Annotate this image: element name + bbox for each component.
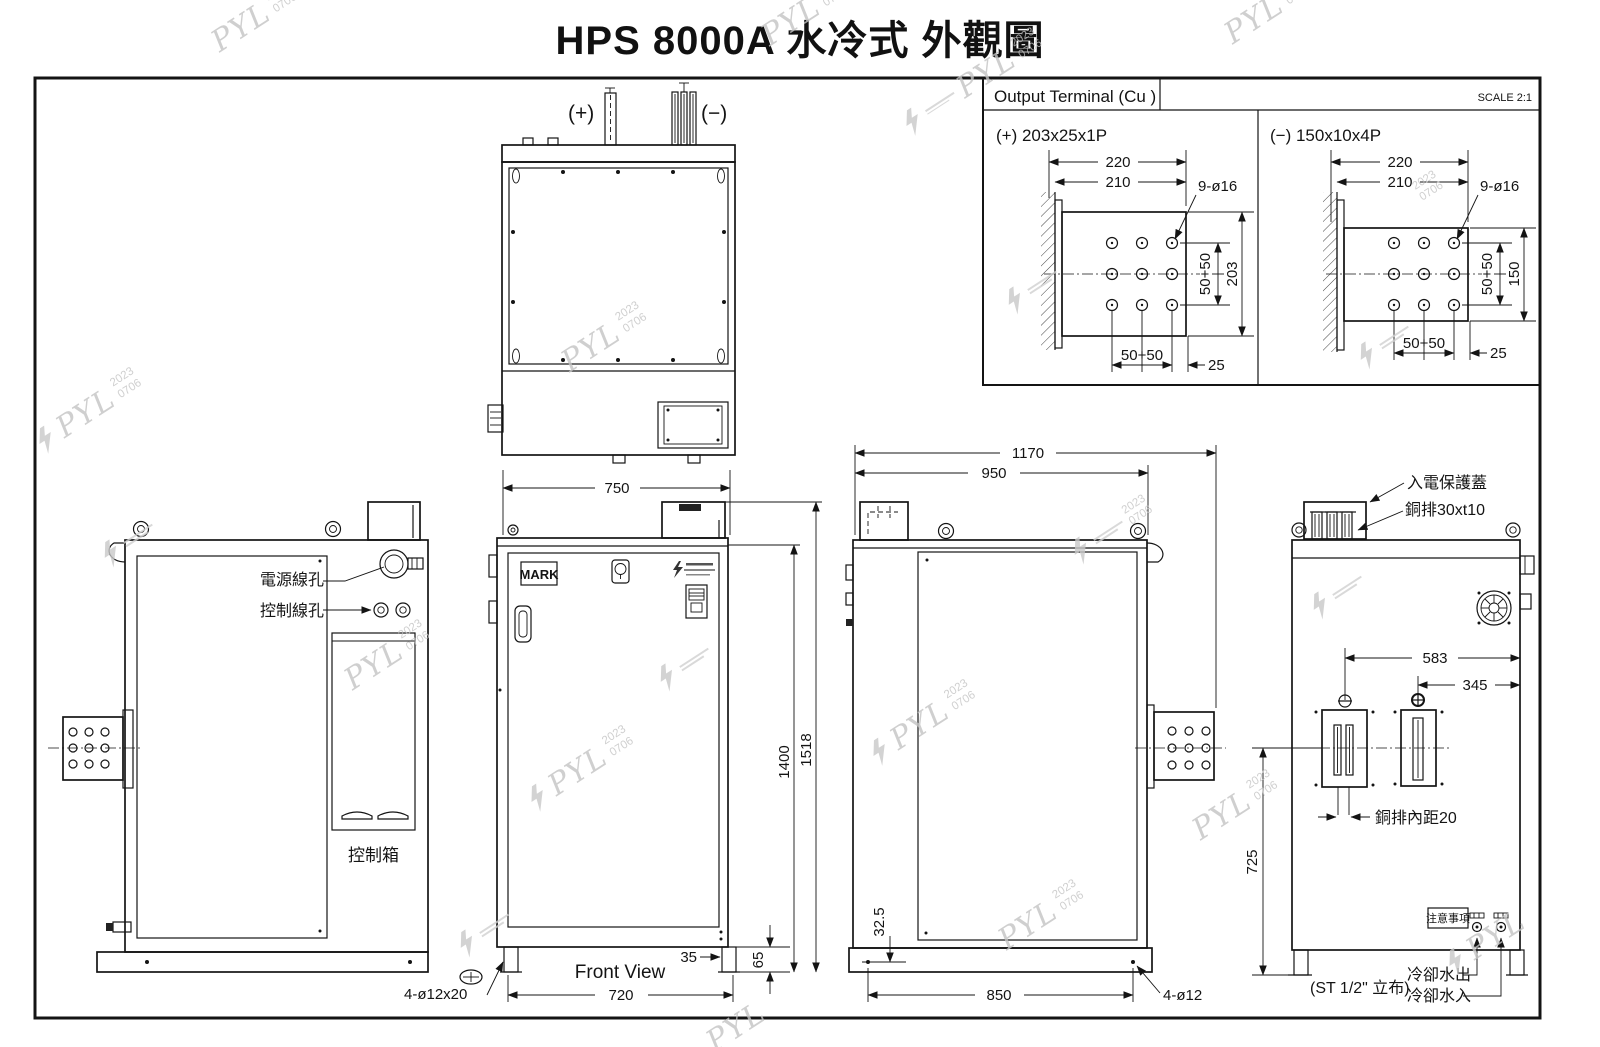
pipe-spec-label: (ST 1/2" 立布) bbox=[1310, 979, 1410, 997]
dim-32-5: 32.5 bbox=[871, 907, 888, 936]
dim-1518: 1518 bbox=[798, 733, 815, 766]
dim-725: 725 bbox=[1244, 849, 1261, 874]
dim-5050-side-pos: 50+50 bbox=[1197, 253, 1214, 295]
left-side-view: 電源線孔 控制線孔 控制箱 bbox=[48, 502, 428, 972]
notice-label: 注意事項 bbox=[1426, 911, 1470, 925]
duct-label bbox=[679, 504, 701, 511]
positive-holes bbox=[1107, 238, 1178, 311]
busbar-label: 銅排30xt10 bbox=[1405, 501, 1485, 519]
top-view-negative-label: (−) bbox=[701, 102, 727, 125]
dim-203-pos: 203 bbox=[1224, 261, 1241, 286]
negative-busbars bbox=[672, 92, 696, 145]
dim-220-pos: 220 bbox=[1105, 154, 1130, 171]
dim-5050-bottom-neg: 50+50 bbox=[1403, 335, 1445, 352]
dim-210-neg: 210 bbox=[1387, 174, 1412, 191]
dim-220-neg: 220 bbox=[1387, 154, 1412, 171]
rear-negative-terminal bbox=[1322, 710, 1367, 787]
hole-callout-4-12: 4-ø12 bbox=[1163, 987, 1202, 1004]
dim-583: 583 bbox=[1422, 650, 1447, 667]
control-cable-hole bbox=[374, 603, 388, 617]
power-cable-hole bbox=[380, 550, 408, 578]
control-box-panel bbox=[332, 633, 415, 830]
drawing-page: HPS 8000A 水冷式 外觀圖 Output Terminal (Cu ) … bbox=[0, 0, 1600, 1047]
power-hole-label: 電源線孔 bbox=[260, 571, 324, 589]
dim-150-neg: 150 bbox=[1506, 261, 1523, 286]
drawing-frame bbox=[35, 78, 1540, 1018]
right-side-view: 1170 950 32.5 bbox=[846, 445, 1226, 1004]
water-in-label: 冷卻水入 bbox=[1407, 987, 1471, 1005]
left-view-duct bbox=[368, 502, 420, 540]
water-out-label: 冷卻水出 bbox=[1407, 966, 1471, 984]
brand-logo bbox=[673, 561, 715, 578]
rear-view: 入電保護蓋 銅排30xt10 583 bbox=[1244, 474, 1534, 1005]
front-view-caption: Front View bbox=[575, 962, 666, 983]
dim-210-pos: 210 bbox=[1105, 174, 1130, 191]
hole-callout-neg: 9-ø16 bbox=[1480, 178, 1519, 195]
top-view: (+) (−) bbox=[488, 83, 735, 463]
side-view-duct bbox=[860, 502, 908, 540]
dim-65: 65 bbox=[750, 952, 767, 969]
negative-terminal-detail: 220 210 9-ø16 50+50 150 5 bbox=[1323, 150, 1536, 362]
dim-35: 35 bbox=[680, 949, 697, 966]
busbar-gap-label: 銅排內距20 bbox=[1375, 809, 1457, 827]
side-view-base bbox=[849, 948, 1152, 972]
hole-callout-pos: 9-ø16 bbox=[1198, 178, 1237, 195]
control-hole-label: 控制線孔 bbox=[260, 602, 324, 620]
dim-345: 345 bbox=[1462, 677, 1487, 694]
dim-1170: 1170 bbox=[1012, 445, 1044, 462]
input-busbars bbox=[1310, 512, 1356, 539]
dim-1400: 1400 bbox=[776, 745, 793, 778]
mark-label: MARK bbox=[520, 567, 560, 582]
front-view: 750 MARK bbox=[404, 470, 822, 1004]
cover-label: 入電保護蓋 bbox=[1407, 474, 1487, 492]
engineering-drawing: Output Terminal (Cu ) SCALE 2:1 (+) 203x… bbox=[0, 0, 1600, 1047]
top-view-connector bbox=[488, 405, 503, 432]
positive-terminal-detail: 220 210 9-ø16 50+50 203 5 bbox=[1041, 150, 1254, 374]
side-terminal-plate bbox=[1154, 712, 1214, 780]
output-terminal-panel: Output Terminal (Cu ) SCALE 2:1 (+) 203x… bbox=[983, 78, 1540, 385]
scale-label: SCALE 2:1 bbox=[1478, 92, 1532, 104]
dim-25-neg: 25 bbox=[1490, 345, 1507, 362]
output-terminal-title: Output Terminal (Cu ) bbox=[994, 87, 1156, 106]
drain-plug bbox=[106, 923, 113, 931]
dim-width-750: 750 bbox=[604, 480, 629, 497]
cooling-fan bbox=[1477, 591, 1511, 625]
control-box-label: 控制箱 bbox=[348, 846, 399, 865]
negative-holes bbox=[1389, 238, 1460, 311]
top-view-positive-label: (+) bbox=[568, 102, 594, 125]
dim-5050-bottom-pos: 50+50 bbox=[1121, 347, 1163, 364]
slot-callout: 4-ø12x20 bbox=[404, 986, 467, 1003]
positive-terminal-label: (+) 203x25x1P bbox=[996, 126, 1107, 145]
negative-terminal-label: (−) 150x10x4P bbox=[1270, 126, 1381, 145]
dim-950: 950 bbox=[981, 465, 1006, 482]
input-protection-cover bbox=[1304, 502, 1366, 539]
dim-850: 850 bbox=[986, 987, 1011, 1004]
dim-720: 720 bbox=[608, 987, 633, 1004]
dim-5050-side-neg: 50+50 bbox=[1479, 253, 1496, 295]
dim-25-pos: 25 bbox=[1208, 357, 1225, 374]
